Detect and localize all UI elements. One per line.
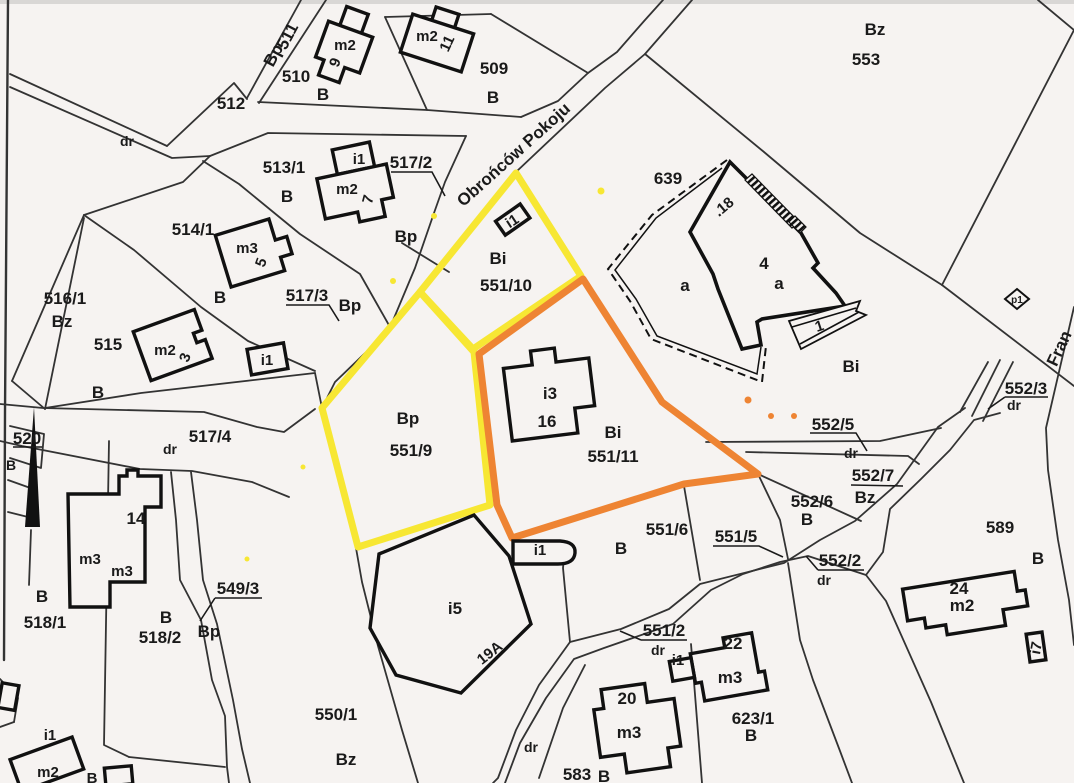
svg-text:551/2: 551/2 — [643, 621, 686, 640]
svg-text:B: B — [801, 510, 813, 529]
svg-text:B: B — [160, 608, 172, 627]
svg-text:Bz: Bz — [855, 488, 876, 507]
svg-text:dr: dr — [817, 572, 832, 588]
svg-text:552/2: 552/2 — [819, 551, 862, 570]
svg-text:22: 22 — [724, 634, 743, 653]
svg-text:dr: dr — [844, 445, 859, 461]
svg-text:i1: i1 — [353, 151, 366, 168]
svg-text:m2: m2 — [950, 596, 975, 615]
svg-text:i1: i1 — [44, 727, 57, 744]
svg-text:517/2: 517/2 — [390, 153, 433, 172]
svg-text:Bz: Bz — [52, 312, 73, 331]
svg-text:B: B — [745, 726, 757, 745]
svg-text:i1: i1 — [261, 352, 274, 369]
svg-text:m3: m3 — [718, 668, 743, 687]
svg-text:dr: dr — [163, 441, 178, 457]
svg-text:B: B — [598, 767, 610, 783]
svg-text:p1: p1 — [1011, 295, 1023, 306]
svg-text:Bi: Bi — [605, 423, 622, 442]
svg-text:520: 520 — [13, 429, 41, 448]
svg-text:B: B — [36, 587, 48, 606]
svg-text:B: B — [281, 187, 293, 206]
svg-text:514/1: 514/1 — [172, 220, 215, 239]
svg-text:552/5: 552/5 — [812, 415, 855, 434]
svg-text:516/1: 516/1 — [44, 289, 87, 308]
svg-text:551/5: 551/5 — [715, 527, 758, 546]
svg-text:552/7: 552/7 — [852, 466, 895, 485]
svg-text:B: B — [487, 88, 499, 107]
svg-text:B: B — [317, 85, 329, 104]
svg-text:m2: m2 — [336, 181, 358, 198]
svg-text:a: a — [774, 274, 784, 293]
svg-text:B: B — [214, 288, 226, 307]
svg-text:i1: i1 — [534, 542, 547, 559]
svg-text:B: B — [1032, 549, 1044, 568]
svg-text:551/9: 551/9 — [390, 441, 433, 460]
svg-text:a: a — [680, 276, 690, 295]
svg-text:551/11: 551/11 — [587, 447, 638, 466]
svg-text:m3: m3 — [617, 723, 642, 742]
svg-text:dr: dr — [1007, 397, 1022, 413]
svg-text:552/3: 552/3 — [1005, 379, 1048, 398]
svg-text:552/6: 552/6 — [791, 492, 834, 511]
svg-text:Bp: Bp — [198, 622, 221, 641]
svg-text:Bz: Bz — [336, 750, 357, 769]
svg-text:B: B — [615, 539, 627, 558]
svg-text:m2: m2 — [37, 764, 59, 781]
svg-text:i5: i5 — [448, 599, 462, 618]
svg-text:16: 16 — [538, 412, 557, 431]
svg-text:551/10: 551/10 — [480, 276, 532, 295]
svg-text:m3: m3 — [236, 240, 258, 257]
svg-text:583: 583 — [563, 765, 591, 783]
svg-text:20: 20 — [618, 689, 637, 708]
svg-text:515: 515 — [94, 335, 122, 354]
svg-text:549/3: 549/3 — [217, 579, 260, 598]
svg-text:553: 553 — [852, 50, 880, 69]
svg-text:Bz: Bz — [865, 20, 886, 39]
svg-text:512: 512 — [217, 94, 245, 113]
svg-text:Bi: Bi — [843, 357, 860, 376]
svg-text:m3: m3 — [111, 563, 133, 580]
svg-text:Bp: Bp — [339, 296, 362, 315]
svg-text:i1: i1 — [672, 652, 685, 669]
svg-text:639: 639 — [654, 169, 682, 188]
svg-text:B: B — [6, 457, 16, 473]
svg-text:m3: m3 — [79, 551, 101, 568]
svg-text:B: B — [92, 383, 104, 402]
svg-text:517/3: 517/3 — [286, 286, 329, 305]
svg-text:4: 4 — [759, 254, 769, 273]
svg-text:550/1: 550/1 — [315, 705, 358, 724]
svg-text:510: 510 — [282, 67, 310, 86]
svg-text:589: 589 — [986, 518, 1014, 537]
svg-text:m2: m2 — [154, 342, 176, 359]
svg-text:dr: dr — [524, 739, 539, 755]
svg-text:dr: dr — [651, 642, 666, 658]
svg-text:Bp: Bp — [395, 227, 418, 246]
svg-text:551/6: 551/6 — [646, 520, 689, 539]
svg-text:517/4: 517/4 — [189, 427, 232, 446]
svg-text:B: B — [87, 770, 98, 783]
svg-text:14: 14 — [127, 509, 146, 528]
svg-text:518/1: 518/1 — [24, 613, 67, 632]
svg-text:i3: i3 — [543, 384, 557, 403]
svg-text:m2: m2 — [416, 28, 438, 45]
svg-text:518/2: 518/2 — [139, 628, 182, 647]
svg-text:Bp: Bp — [397, 409, 420, 428]
svg-text:509: 509 — [480, 59, 508, 78]
svg-text:m2: m2 — [334, 37, 356, 54]
svg-text:Bi: Bi — [490, 249, 507, 268]
svg-text:dr: dr — [120, 133, 135, 149]
svg-text:513/1: 513/1 — [263, 158, 306, 177]
